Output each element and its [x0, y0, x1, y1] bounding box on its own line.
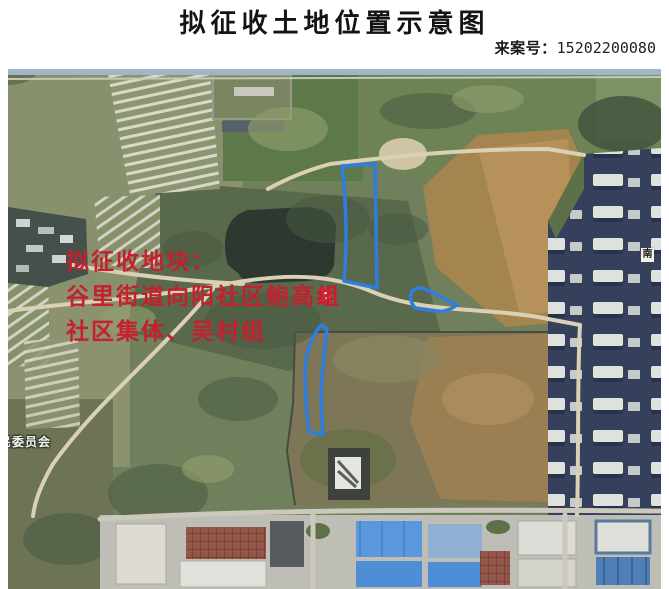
factory-red-roof	[480, 551, 510, 585]
bare-earth	[442, 373, 534, 425]
case-number-label: 来案号：	[495, 40, 557, 57]
annotation-line: 拟征收地块：	[66, 245, 341, 280]
annotation-block: 拟征收地块： 谷里街道向阳社区鲍高组 社区集体、吴村组	[66, 245, 341, 350]
committee-label: 民委员会	[8, 433, 51, 450]
factory-lightblue-roof	[428, 524, 482, 558]
factory-red-roof	[186, 527, 266, 559]
factory-framed	[596, 521, 650, 553]
cleared-patch	[333, 335, 443, 383]
factory-blue-roof	[356, 561, 422, 587]
case-number-value: 15202200080	[557, 39, 656, 57]
annotation-line: 谷里街道向阳社区鲍高组	[66, 280, 341, 315]
place-marker-label: 南	[641, 248, 654, 262]
page-title: 拟征收土地位置示意图	[0, 3, 669, 40]
factory-white	[180, 561, 266, 587]
place-marker-dot	[645, 264, 651, 269]
factory-white	[116, 524, 166, 584]
factory-blue-roof	[356, 521, 422, 557]
factory-blue-roof	[428, 562, 482, 587]
satellite-map: 拟征收地块： 谷里街道向阳社区鲍高组 社区集体、吴村组 民委员会 南	[8, 69, 661, 589]
tree-patch	[306, 523, 330, 539]
case-number: 来案号：15202200080	[495, 37, 656, 58]
tree-patch	[486, 520, 510, 534]
annotation-line: 社区集体、吴村组	[66, 315, 341, 350]
farm-building	[234, 87, 274, 96]
crop-strips-west	[24, 337, 80, 429]
document-page: 拟征收土地位置示意图 来案号：15202200080	[0, 0, 669, 589]
factory-dark	[270, 521, 304, 567]
